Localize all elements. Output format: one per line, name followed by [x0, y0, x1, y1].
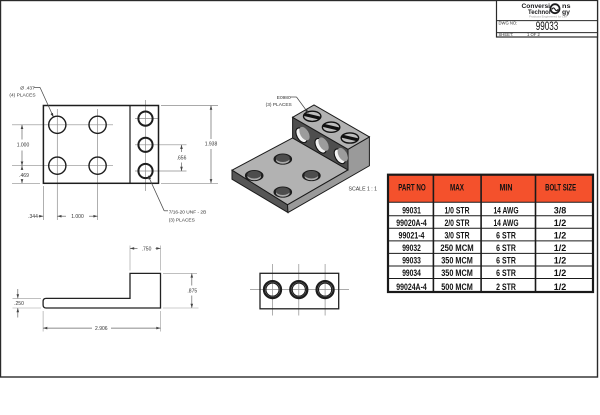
svg-text:E0980: E0980: [277, 95, 291, 101]
svg-text:PART NO: PART NO: [398, 182, 426, 192]
svg-text:Products Engineered for Life: Products Engineered for Life: [529, 15, 567, 19]
svg-text:2.906: 2.906: [95, 326, 108, 332]
svg-text:99020A-4: 99020A-4: [396, 218, 427, 228]
svg-text:500 MCM: 500 MCM: [441, 282, 473, 292]
svg-text:1/2: 1/2: [554, 282, 567, 292]
svg-text:1/2: 1/2: [554, 230, 567, 240]
svg-text:.344: .344: [28, 214, 38, 220]
svg-text:.875: .875: [187, 289, 197, 295]
svg-text:BOLT SIZE: BOLT SIZE: [545, 182, 576, 192]
svg-text:SHEET:: SHEET:: [499, 32, 514, 37]
svg-text:(4) PLACES: (4) PLACES: [9, 92, 35, 98]
svg-text:SCALE 1 : 1: SCALE 1 : 1: [349, 186, 378, 192]
svg-text:14 AWG: 14 AWG: [493, 218, 518, 228]
svg-text:2 STR: 2 STR: [496, 282, 516, 292]
svg-text:3/8: 3/8: [554, 205, 567, 215]
svg-text:1/2: 1/2: [554, 255, 567, 265]
svg-text:MIN: MIN: [500, 182, 513, 192]
svg-text:6 STR: 6 STR: [496, 255, 516, 265]
svg-text:1/2: 1/2: [554, 218, 567, 228]
svg-text:1/2: 1/2: [554, 243, 567, 253]
svg-text:6 STR: 6 STR: [496, 268, 516, 278]
svg-text:2/0 STR: 2/0 STR: [445, 218, 470, 228]
svg-text:1.938: 1.938: [205, 142, 218, 148]
svg-text:(3) PLACES: (3) PLACES: [169, 218, 195, 224]
svg-text:1.000: 1.000: [17, 143, 30, 149]
svg-text:99021-4: 99021-4: [399, 230, 425, 240]
svg-text:.250: .250: [14, 301, 24, 307]
svg-text:99033: 99033: [536, 19, 559, 33]
svg-text:6 STR: 6 STR: [496, 243, 516, 253]
svg-text:7/16-20 UNF - 2B: 7/16-20 UNF - 2B: [169, 210, 207, 216]
svg-text:1 OF 2: 1 OF 2: [527, 32, 540, 37]
svg-text:1.000: 1.000: [71, 214, 84, 220]
svg-text:.656: .656: [177, 155, 187, 161]
svg-text:Ø .437: Ø .437: [20, 85, 35, 91]
svg-text:3/0 STR: 3/0 STR: [445, 230, 470, 240]
svg-text:.750: .750: [142, 246, 152, 252]
svg-text:(3) PLACES: (3) PLACES: [266, 102, 292, 108]
svg-text:99024A-4: 99024A-4: [396, 282, 427, 292]
svg-text:99034: 99034: [402, 268, 421, 278]
svg-text:14 AWG: 14 AWG: [493, 205, 518, 215]
svg-text:1/2: 1/2: [554, 268, 567, 278]
svg-text:DWG NO:: DWG NO:: [499, 20, 518, 25]
svg-text:6 STR: 6 STR: [496, 230, 516, 240]
svg-text:MAX: MAX: [450, 182, 464, 192]
svg-text:.469: .469: [19, 173, 29, 179]
svg-text:1/0 STR: 1/0 STR: [445, 205, 470, 215]
svg-text:99031: 99031: [402, 205, 421, 215]
svg-text:250 MCM: 250 MCM: [440, 243, 473, 253]
svg-text:99032: 99032: [402, 243, 421, 253]
svg-text:350 MCM: 350 MCM: [441, 268, 473, 278]
svg-text:99033: 99033: [402, 255, 421, 265]
svg-text:350 MCM: 350 MCM: [441, 255, 473, 265]
